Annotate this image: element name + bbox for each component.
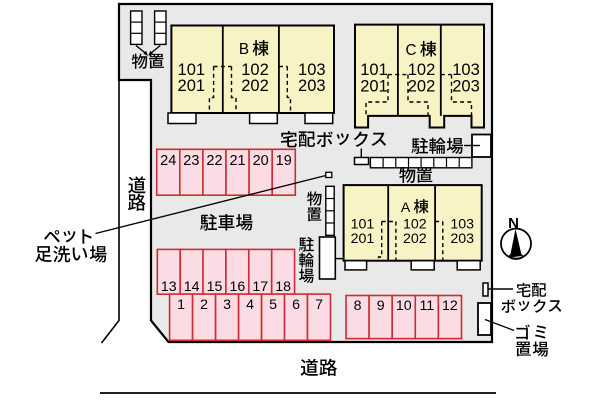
svg-text:10: 10 [396,298,412,314]
svg-text:1: 1 [177,297,185,313]
svg-text:20: 20 [253,153,269,169]
svg-text:22: 22 [206,153,222,169]
svg-text:13: 13 [161,279,177,295]
svg-text:17: 17 [252,279,268,295]
svg-text:201: 201 [360,78,388,96]
svg-text:102: 102 [403,216,427,232]
svg-text:6: 6 [292,297,300,313]
svg-text:15: 15 [207,279,223,295]
svg-text:3: 3 [223,297,231,313]
svg-text:9: 9 [377,298,385,314]
svg-text:23: 23 [183,153,199,169]
svg-text:203: 203 [450,231,474,247]
svg-text:C: C [405,42,416,59]
svg-text:7: 7 [315,297,323,313]
svg-text:103: 103 [450,216,474,232]
svg-text:16: 16 [229,279,245,295]
svg-text:201: 201 [351,231,375,247]
svg-text:203: 203 [298,77,326,95]
svg-text:202: 202 [408,78,436,96]
svg-text:21: 21 [229,153,245,169]
svg-text:101: 101 [351,216,375,232]
svg-text:24: 24 [160,153,176,169]
svg-text:B: B [239,41,249,58]
svg-text:A: A [401,199,411,215]
svg-text:4: 4 [246,297,254,313]
svg-text:201: 201 [178,77,206,95]
svg-text:18: 18 [275,279,291,295]
svg-text:12: 12 [442,298,458,314]
svg-text:11: 11 [419,298,434,314]
svg-text:102: 102 [408,61,436,79]
svg-text:202: 202 [241,77,269,95]
svg-text:101: 101 [360,61,388,79]
svg-text:19: 19 [276,153,292,169]
svg-text:203: 203 [452,78,480,96]
svg-text:14: 14 [184,279,200,295]
svg-text:103: 103 [452,61,480,79]
svg-text:202: 202 [403,231,427,247]
svg-text:8: 8 [354,298,362,314]
svg-text:5: 5 [269,297,277,313]
svg-text:2: 2 [200,297,208,313]
